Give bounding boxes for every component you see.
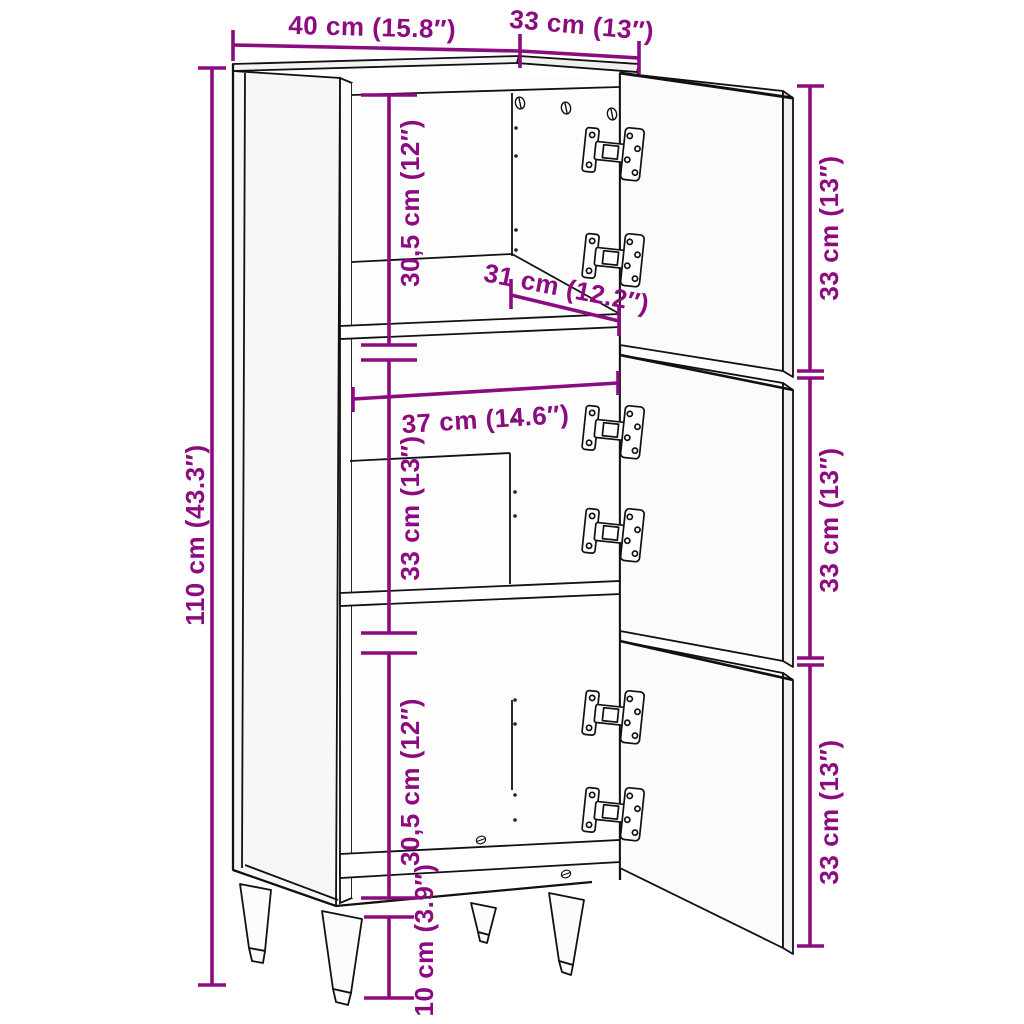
dim-label-top-depth: 33 cm (13″) — [508, 4, 655, 47]
leg-back-right — [549, 893, 584, 965]
dim-total-height: 110 cm (43.3″) — [180, 68, 226, 985]
dim-door-middle: 33 cm (13″) — [797, 378, 844, 658]
dim-label-top-width: 40 cm (15.8″) — [288, 10, 457, 44]
door-top-edge-band — [783, 91, 793, 377]
dim-label-compartment-top: 30,5 cm (12″) — [395, 119, 425, 287]
door-middle-face — [620, 355, 783, 661]
left-side-face — [233, 71, 340, 906]
leg-back-left — [240, 884, 271, 951]
leg-foot — [478, 932, 489, 943]
door-bottom — [620, 641, 793, 954]
door-middle — [620, 355, 793, 667]
door-top — [620, 73, 793, 377]
door-bottom-edge-band — [783, 673, 793, 954]
interior-background — [352, 74, 620, 898]
dim-door-top: 33 cm (13″) — [797, 86, 844, 371]
leg-foot — [249, 948, 265, 963]
dim-label-compartment-bottom: 30,5 cm (12″) — [395, 698, 425, 866]
front-left-stile — [340, 78, 352, 903]
top-panel-front-band — [233, 56, 519, 71]
dim-label-door-middle: 33 cm (13″) — [814, 447, 844, 592]
cabinet-interior — [340, 74, 620, 898]
dim-label-leg-height: 10 cm (3.9″) — [409, 864, 439, 1017]
product-dimension-image: 40 cm (15.8″) 33 cm (13″) 110 cm (43.3″)… — [0, 0, 1024, 1024]
dim-line — [233, 45, 520, 51]
dim-label-door-top: 33 cm (13″) — [814, 155, 844, 300]
door-middle-edge-band — [783, 383, 793, 667]
dim-door-bottom: 33 cm (13″) — [797, 665, 844, 946]
cabinet-left-side — [233, 71, 352, 906]
cabinet-drawing — [233, 56, 793, 1005]
leg-back-center — [471, 903, 496, 935]
leg-front-left — [322, 911, 362, 993]
dim-label-compartment-middle: 33 cm (13″) — [395, 435, 425, 580]
dim-label-door-bottom: 33 cm (13″) — [814, 739, 844, 884]
cabinet-dimension-diagram: 40 cm (15.8″) 33 cm (13″) 110 cm (43.3″)… — [0, 0, 1024, 1024]
door-top-face — [620, 73, 783, 371]
dim-label-total-height: 110 cm (43.3″) — [180, 444, 210, 625]
